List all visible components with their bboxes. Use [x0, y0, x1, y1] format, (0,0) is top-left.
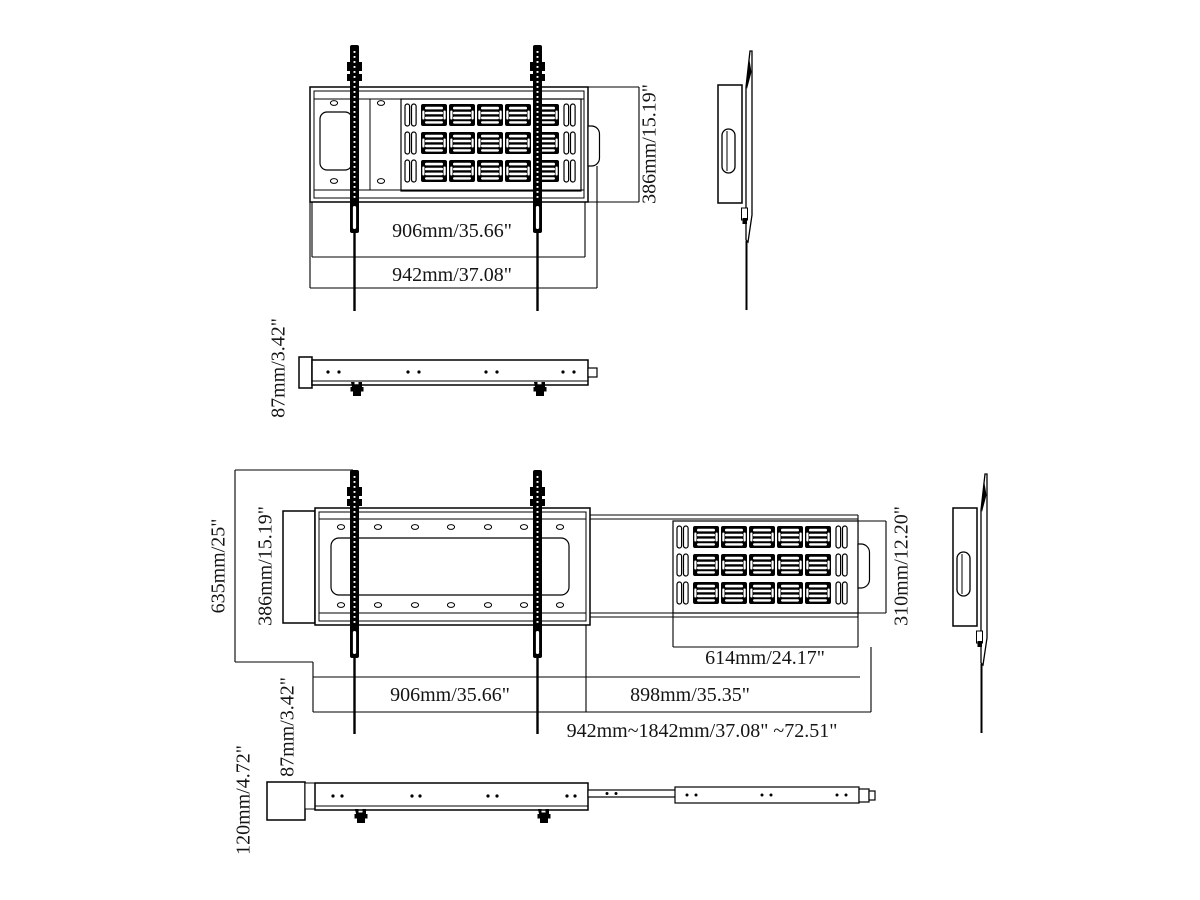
vent-grid	[677, 526, 847, 604]
dim-label-width-range: 942mm~1842mm/37.08" ~72.51"	[567, 720, 838, 742]
dim-label-total-width-top: 942mm/37.08"	[392, 264, 512, 286]
dim-label-plate-height: 386mm/15.19"	[255, 506, 277, 626]
dim-label-height-top: 386mm/15.19"	[639, 84, 661, 204]
side-view-extended	[953, 474, 987, 733]
wall-plate-end-cap	[283, 511, 315, 623]
front-view-extended	[283, 470, 870, 734]
dim-label-depth-bottom: 87mm/3.42"	[277, 677, 299, 777]
top-profile-view	[299, 357, 597, 396]
dim-label-vent-panel-width: 614mm/24.17"	[705, 647, 825, 669]
dim-label-bracket-width-bottom: 906mm/35.66"	[390, 684, 510, 706]
extension-arm	[590, 515, 870, 617]
dim-label-arm-height: 310mm/12.20"	[891, 506, 913, 626]
dim-label-depth-top: 87mm/3.42"	[268, 318, 290, 418]
mount-drawing-svg: 386mm/15.19" 906mm/35.66" 942mm/37.08" 8…	[0, 0, 1200, 900]
carry-handle	[858, 544, 870, 588]
dim-label-bracket-width-top: 906mm/35.66"	[392, 220, 512, 242]
bottom-assembly: 635mm/25" 386mm/15.19" 310mm/12.20" 614m…	[208, 470, 987, 855]
technical-drawing-page: 386mm/15.19" 906mm/35.66" 942mm/37.08" 8…	[0, 0, 1200, 900]
mount-clip	[355, 809, 368, 823]
dim-label-total-depth: 120mm/4.72"	[233, 745, 255, 855]
bottom-profile-view	[267, 782, 875, 823]
dim-label-total-height: 635mm/25"	[208, 519, 230, 614]
slide-rail-extension	[588, 787, 875, 803]
top-assembly: 386mm/15.19" 906mm/35.66" 942mm/37.08" 8…	[268, 45, 752, 418]
vent-grid	[405, 104, 575, 182]
carry-handle	[588, 126, 600, 166]
dim-label-extension-width: 898mm/35.35"	[630, 684, 750, 706]
side-view-retracted	[718, 51, 752, 310]
mount-clip	[538, 809, 551, 823]
